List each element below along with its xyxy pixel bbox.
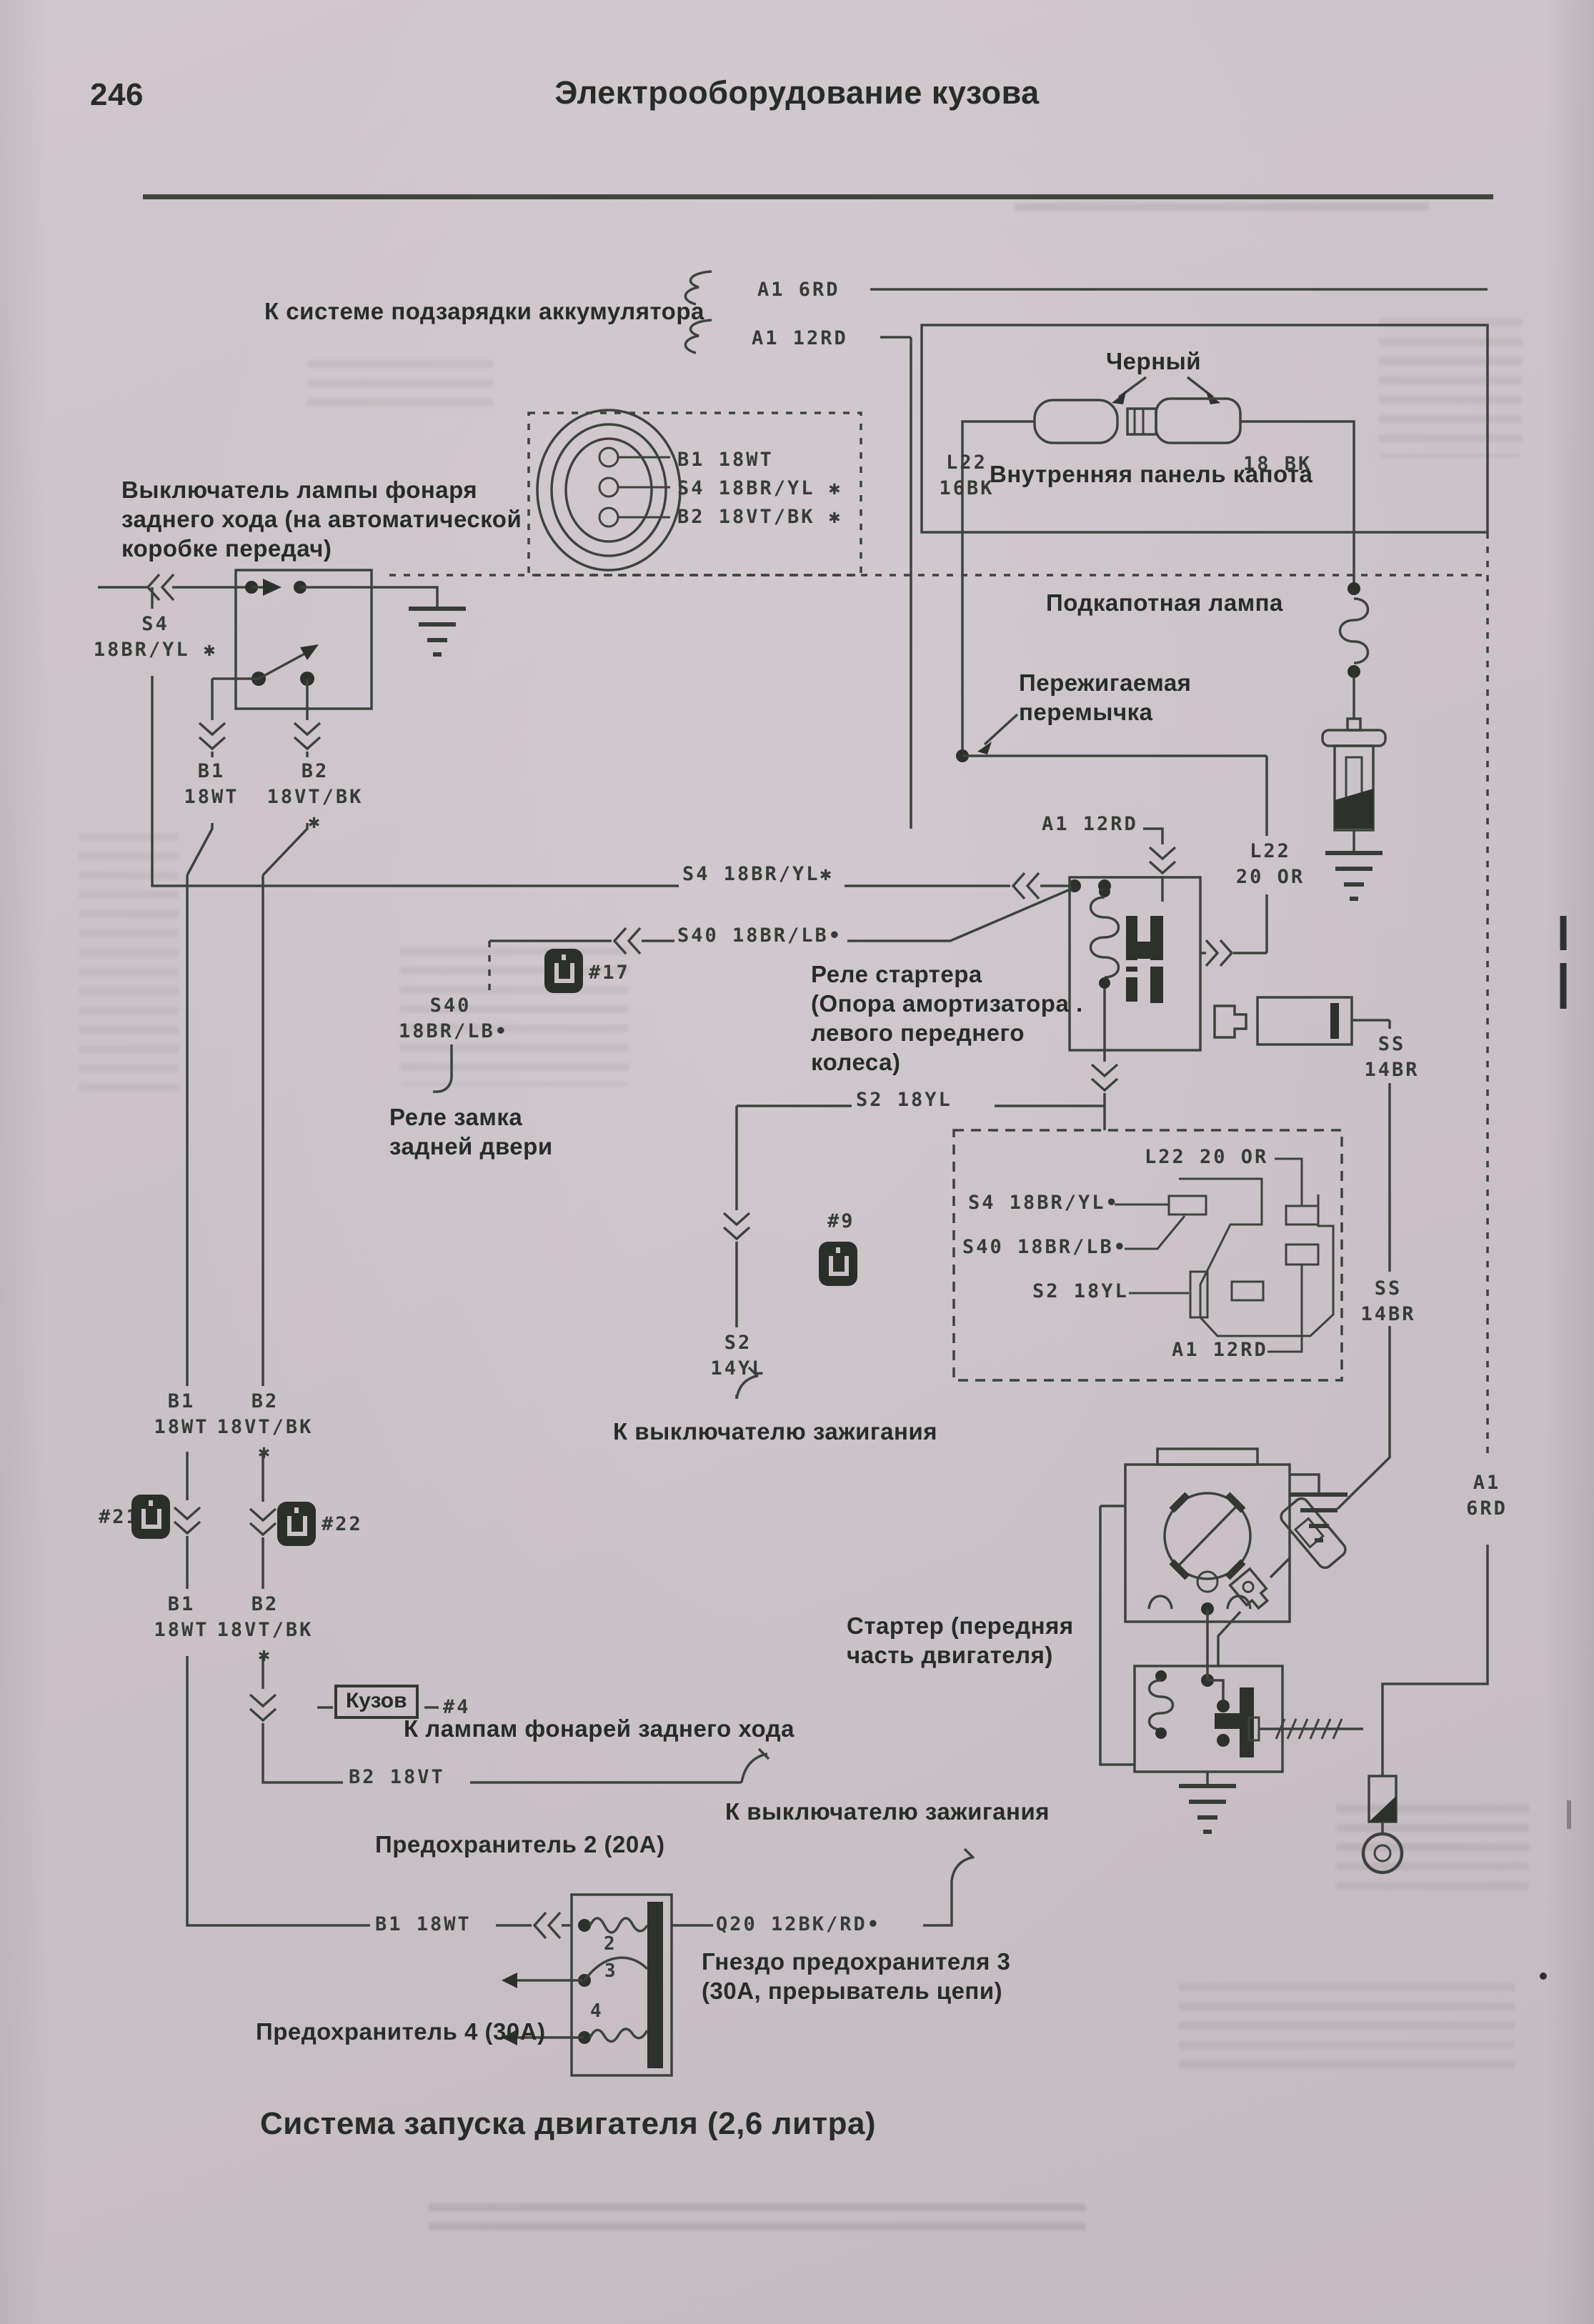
ground-connector-icon-17 (544, 949, 583, 993)
caption-fuse4: Предохранитель 4 (30A) (256, 2018, 546, 2047)
manual-page: 246 Электрооборудование кузова К системе… (0, 0, 1594, 2324)
pin-label-s4: S4 18BR/YL ✱ (677, 476, 842, 502)
caption-to-ignition-mid: К выключателю зажигания (613, 1417, 937, 1447)
wire-label-b1-18wt-bottom: B1 18WT (375, 1912, 472, 1938)
wire-s4 (152, 587, 1111, 899)
header-rule (143, 194, 1493, 199)
scan-artifacts (1540, 916, 1569, 1980)
pin-label-b2: B2 18VT/BK ✱ (677, 504, 842, 530)
caption-starter-relay: Реле стартера (Опора амортизатора . лево… (811, 960, 1083, 1077)
wire-b1 (174, 679, 572, 1938)
wire-label-s2-row: S2 18YL (856, 1087, 952, 1113)
caption-fuse3-socket: Гнездо предохранителя 3 (30A, прерывател… (702, 1948, 1010, 2006)
wire-label-s4-left: S4 18BR/YL ✱ (89, 612, 221, 662)
wire-label-ss-lower: SS 14BR (1353, 1276, 1424, 1327)
connector-number-22: #22 (322, 1512, 363, 1537)
page-header: Электрооборудование кузова (0, 73, 1594, 113)
diagram-title: Система запуска двигателя (2,6 литра) (260, 2105, 876, 2144)
wire-label-s40-dangle: S40 18BR/LB• (399, 993, 502, 1044)
wire-label-18bk: 18 BK (1243, 452, 1312, 477)
pin-label-b1: B1 18WT (677, 447, 774, 473)
wire-label-a1-12rd-top: A1 12RD (752, 326, 848, 351)
ground-connector-icon-22 (277, 1502, 316, 1546)
caption-to-charging-system: К системе подзарядки аккумулятора (264, 297, 704, 326)
wire-a1-6rd-return (1363, 532, 1488, 1872)
detail-label-s40: S40 18BR/LB• (962, 1235, 1127, 1260)
wire-label-ss-upper: SS 14BR (1356, 1032, 1428, 1082)
detail-label-s2: S2 18YL (1032, 1279, 1129, 1305)
detail-label-l22-20or: L22 20 OR (1145, 1144, 1268, 1170)
body-ground-box: Кузов (334, 1685, 419, 1719)
wire-b2 (250, 679, 769, 1782)
wire-label-b2-lower: B2 18VT/BK ✱ (209, 1592, 322, 1668)
wire-label-s40-row: S40 18BR/LB• (677, 923, 842, 949)
caption-underhood-lamp: Подкапотная лампа (1046, 589, 1283, 618)
wire-label-b2-upper: B2 18VT/BK ✱ (259, 759, 372, 835)
caption-rear-door-relay: Реле замка задней двери (389, 1103, 553, 1162)
wire-label-l22-20or: L22 20 OR (1231, 839, 1310, 889)
wire-label-b1-upper: B1 18WT (171, 759, 251, 809)
connector-number-17: #17 (589, 960, 630, 986)
wire-label-a1-6rd-top: A1 6RD (757, 277, 840, 303)
wire-label-a1-6rd-bottom: A1 6RD (1448, 1470, 1526, 1521)
caption-black: Черный (1106, 347, 1201, 376)
wire-label-b2-18vt: B2 18VT (349, 1765, 445, 1790)
detail-label-a1: A1 12RD (1172, 1337, 1268, 1363)
fuse-number-4: 4 (590, 1999, 602, 2023)
ground-connector-icon-21 (131, 1495, 170, 1539)
fuse-number-3: 3 (604, 1959, 617, 1983)
detail-label-s4: S4 18BR/YL• (968, 1190, 1120, 1216)
wire-label-b2-mid: B2 18VT/BK ✱ (209, 1389, 322, 1465)
ground-connector-icon-9 (819, 1242, 857, 1286)
underhood-lamp-symbol (1322, 532, 1385, 899)
starter-symbol (1100, 1449, 1363, 1832)
connector-number-9: #9 (827, 1209, 855, 1235)
caption-to-ignition-bottom: К выключателю зажигания (725, 1797, 1050, 1827)
wire-label-s2-col: S2 14YL (702, 1330, 774, 1381)
hood-panel-box (922, 325, 1488, 756)
caption-to-reversing-lamps: К лампам фонарей заднего хода (404, 1715, 794, 1744)
wire-label-s4-row: S4 18BR/YL✱ (682, 862, 834, 887)
caption-fuse2: Предохранитель 2 (20A) (375, 1830, 665, 1860)
caption-starter: Стартер (передняя часть двигателя) (847, 1612, 1074, 1670)
wire-label-q20: Q20 12BK/RD• (716, 1912, 881, 1938)
caption-reversing-switch: Выключатель лампы фонаря заднего хода (н… (121, 476, 522, 564)
wire-label-a1-12rd-mid: A1 12RD (1042, 812, 1138, 837)
caption-fusible-link: Пережигаемая перемычка (1019, 669, 1191, 727)
fuse-number-2: 2 (604, 1932, 616, 1956)
